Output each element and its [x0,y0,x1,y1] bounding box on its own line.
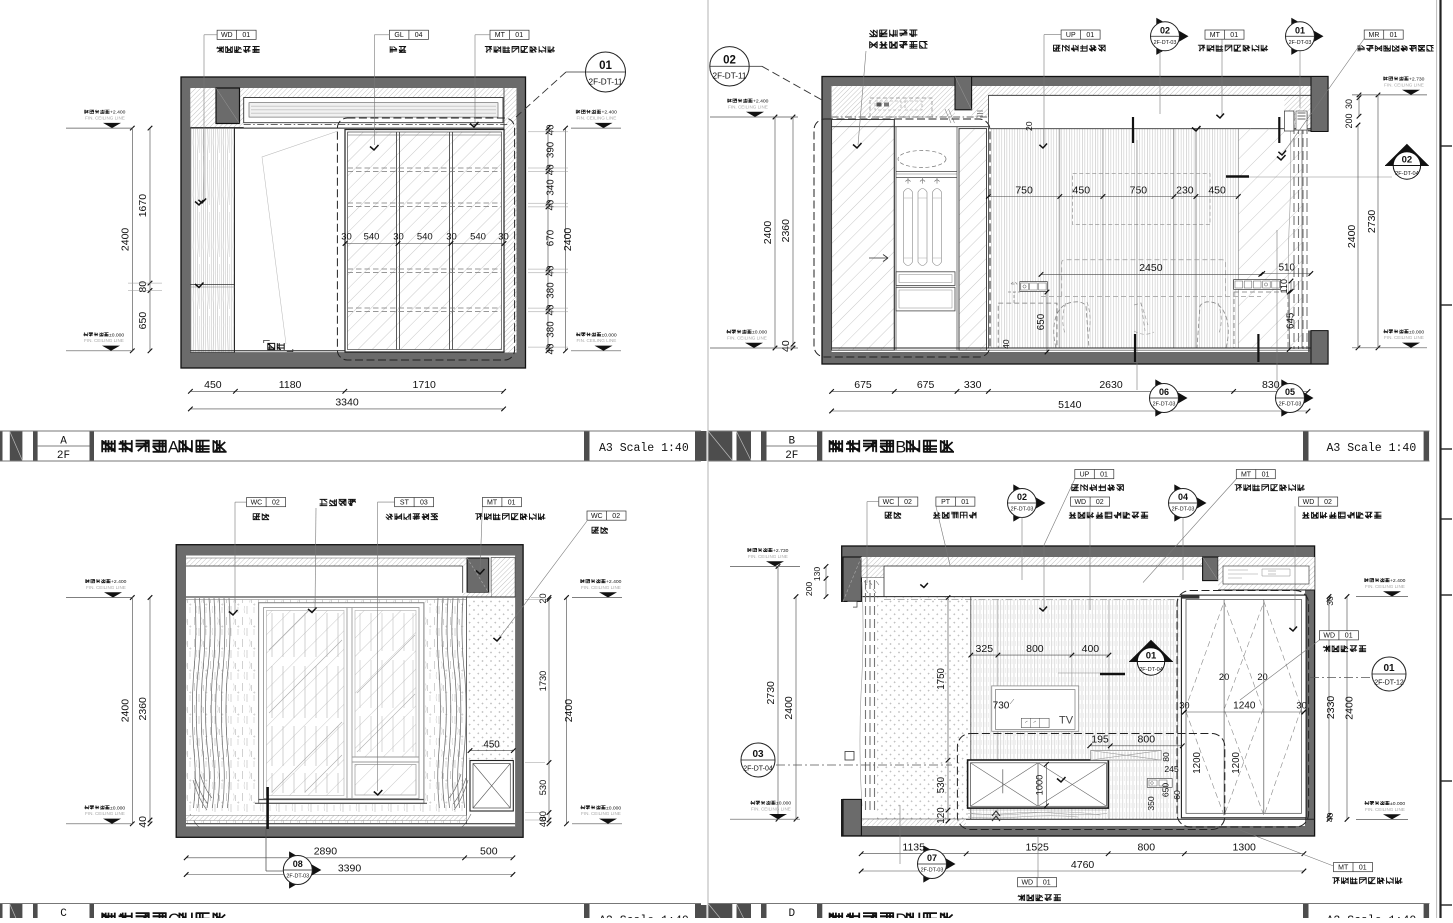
svg-text:TV: TV [1059,715,1074,727]
svg-text:WD: WD [1303,499,1315,506]
svg-text:01: 01 [242,32,250,39]
svg-text:WD: WD [221,32,233,39]
svg-text:2F-DT-03: 2F-DT-03 [1154,40,1177,46]
svg-text:800: 800 [1026,643,1044,655]
svg-text:2400: 2400 [762,221,774,245]
svg-text:20: 20 [1024,121,1034,131]
svg-text:540: 540 [364,232,380,243]
svg-text:1180: 1180 [279,379,302,391]
svg-text:30: 30 [393,232,404,243]
svg-text:40: 40 [1001,339,1011,349]
svg-text:30: 30 [1296,700,1306,710]
svg-text:1200: 1200 [1192,751,1203,773]
svg-text:2400: 2400 [119,699,131,723]
svg-text:650: 650 [1036,313,1047,330]
svg-text:325: 325 [976,643,994,655]
svg-text:2F-DT-03: 2F-DT-03 [1279,402,1302,408]
svg-text:01: 01 [1146,651,1157,662]
svg-text:390: 390 [546,141,557,158]
svg-text:380: 380 [546,321,557,338]
svg-text:540: 540 [470,232,486,243]
svg-text:30: 30 [1179,700,1189,710]
svg-text:2400: 2400 [119,228,131,252]
svg-text:530: 530 [538,780,548,796]
svg-text:02: 02 [904,499,912,506]
svg-text:02: 02 [612,513,620,520]
svg-text:40: 40 [1325,813,1335,823]
svg-text:30: 30 [498,232,509,243]
svg-text:06: 06 [1159,387,1169,397]
svg-text:2730: 2730 [765,681,777,705]
svg-text:350: 350 [1146,796,1156,811]
svg-text:450: 450 [204,379,222,391]
svg-text:C: C [60,908,67,918]
svg-text:2400: 2400 [1344,696,1356,720]
svg-text:01: 01 [1359,865,1367,872]
svg-text:450: 450 [1208,184,1226,196]
svg-text:675: 675 [917,379,935,391]
svg-text:645: 645 [1286,312,1297,329]
svg-text:110: 110 [1279,279,1289,293]
svg-text:01: 01 [1383,663,1395,674]
svg-text:2450: 2450 [1139,262,1163,274]
svg-text:FIN. CEILING LINE: FIN. CEILING LINE [85,811,125,816]
svg-text:2F-DT-11: 2F-DT-11 [713,72,747,81]
svg-text:01: 01 [1100,472,1108,479]
svg-text:730: 730 [993,700,1010,711]
svg-text:UP: UP [1066,32,1076,39]
svg-text:120: 120 [936,807,947,824]
svg-text:02: 02 [723,54,736,66]
svg-text:2F: 2F [57,450,70,462]
svg-text:02: 02 [1096,499,1104,506]
svg-text:FIN. CEILING LINE: FIN. CEILING LINE [1384,82,1424,87]
svg-text:07: 07 [927,853,937,863]
svg-text:04: 04 [415,32,423,39]
svg-text:05: 05 [1285,387,1295,397]
svg-text:01: 01 [1230,32,1238,39]
svg-text:03: 03 [420,500,428,507]
svg-text:WD: WD [1323,633,1335,640]
svg-text:FIN. CEILING LINE: FIN. CEILING LINE [581,585,621,590]
svg-text:400: 400 [1082,643,1100,655]
svg-text:01: 01 [1345,633,1353,640]
svg-text:200: 200 [804,582,814,597]
svg-text:MT: MT [495,32,506,39]
svg-text:2F-DT-03: 2F-DT-03 [1153,402,1176,408]
svg-text:800: 800 [1138,734,1156,746]
svg-text:D: D [895,911,907,918]
svg-text:A3 Scale 1:40: A3 Scale 1:40 [1327,915,1417,919]
svg-text:380: 380 [546,282,557,299]
svg-text:1135: 1135 [902,842,925,854]
svg-text:A: A [168,439,179,457]
svg-text:MR: MR [1369,32,1380,39]
svg-text:3340: 3340 [335,397,359,409]
svg-text:1670: 1670 [137,194,149,218]
svg-text:02: 02 [272,500,280,507]
svg-text:245: 245 [1164,764,1179,774]
svg-text:PT: PT [941,499,951,506]
svg-text:FIN. CEILING LINE: FIN. CEILING LINE [728,104,768,109]
svg-text:30: 30 [1344,99,1354,109]
svg-text:2F-DT-12: 2F-DT-12 [1374,680,1404,687]
svg-text:A: A [60,436,67,448]
svg-text:40: 40 [137,816,149,828]
svg-text:UP: UP [1080,472,1090,479]
svg-text:A3 Scale 1:40: A3 Scale 1:40 [599,915,689,919]
svg-text:1730: 1730 [538,671,548,692]
svg-text:03: 03 [752,749,764,760]
svg-text:FIN. CEILING LINE: FIN. CEILING LINE [727,335,767,340]
svg-text:30: 30 [446,232,457,243]
svg-text:1000: 1000 [1034,775,1044,796]
svg-text:20: 20 [538,593,548,603]
svg-text:WC: WC [591,513,603,520]
svg-text:MT: MT [1241,472,1252,479]
svg-text:500: 500 [480,846,498,858]
svg-text:A3 Scale 1:40: A3 Scale 1:40 [599,442,689,455]
svg-text:02: 02 [1402,155,1413,166]
svg-text:FIN. CEILING LINE: FIN. CEILING LINE [748,554,788,559]
svg-text:750: 750 [1015,184,1033,196]
svg-text:2F-DT-04: 2F-DT-04 [1395,171,1419,177]
svg-text:FIN. CEILING LINE: FIN. CEILING LINE [1384,335,1424,340]
svg-text:01: 01 [1390,32,1398,39]
svg-text:WC: WC [883,499,895,506]
svg-text:01: 01 [515,32,523,39]
svg-text:80: 80 [137,281,149,293]
svg-text:40: 40 [538,817,548,827]
svg-text:C: C [168,911,180,918]
svg-text:01: 01 [508,500,516,507]
svg-text:450: 450 [1073,184,1091,196]
svg-text:01: 01 [1295,25,1305,35]
svg-text:30: 30 [1325,596,1335,606]
svg-text:2890: 2890 [314,846,338,858]
svg-text:MT: MT [1210,32,1221,39]
svg-text:FIN. CEILING LINE: FIN. CEILING LINE [577,338,617,343]
svg-text:530: 530 [936,776,947,793]
svg-text:40: 40 [780,340,792,352]
svg-text:A3 Scale 1:40: A3 Scale 1:40 [1327,442,1417,455]
svg-text:1200: 1200 [1231,751,1242,773]
svg-text:2330: 2330 [1325,696,1337,720]
svg-text:4760: 4760 [1071,859,1095,871]
svg-text:800: 800 [1138,842,1156,854]
svg-text:2400: 2400 [562,228,574,252]
svg-text:WD: WD [1074,499,1086,506]
svg-text:40: 40 [546,164,557,175]
svg-text:195: 195 [1091,734,1109,746]
svg-text:450: 450 [483,739,500,750]
svg-text:2360: 2360 [780,219,792,243]
svg-text:2F-DT-03: 2F-DT-03 [1011,507,1034,513]
svg-text:2F-DT-03: 2F-DT-03 [1172,507,1195,513]
svg-text:1710: 1710 [413,379,437,391]
svg-text:1300: 1300 [1233,842,1257,854]
svg-text:2F-DT-03: 2F-DT-03 [921,868,944,874]
svg-text:130: 130 [812,567,822,582]
svg-text:D: D [788,908,795,918]
svg-text:FIN. CEILING LINE: FIN. CEILING LINE [577,116,617,121]
svg-text:WD: WD [1021,880,1033,887]
svg-text:FIN. CEILING LINE: FIN. CEILING LINE [86,585,126,590]
svg-text:2400: 2400 [783,696,795,720]
svg-text:02: 02 [1324,499,1332,506]
svg-text:2F-DT-11: 2F-DT-11 [589,77,623,86]
svg-text:FIN. CEILING LINE: FIN. CEILING LINE [85,116,125,121]
svg-text:510: 510 [1279,262,1296,273]
svg-text:30: 30 [341,232,352,243]
svg-text:01: 01 [1262,472,1270,479]
svg-text:2630: 2630 [1099,379,1123,391]
svg-text:40: 40 [546,199,557,210]
svg-text:04: 04 [1178,492,1188,502]
svg-text:20: 20 [1219,672,1229,682]
svg-text:FIN. CEILING LINE: FIN. CEILING LINE [1365,584,1405,589]
svg-text:FIN. CEILING LINE: FIN. CEILING LINE [84,338,124,343]
svg-text:2400: 2400 [1346,225,1358,249]
svg-text:3390: 3390 [338,862,362,874]
svg-text:670: 670 [546,229,557,246]
svg-text:2F-DT-04: 2F-DT-04 [743,766,773,773]
svg-text:01: 01 [1086,32,1094,39]
svg-text:08: 08 [293,859,303,869]
svg-text:230: 230 [1176,184,1194,196]
svg-text:02: 02 [1017,492,1027,502]
svg-text:2730: 2730 [1366,210,1378,234]
svg-text:1750: 1750 [936,667,947,689]
svg-text:ST: ST [400,500,410,507]
svg-text:01: 01 [1043,880,1051,887]
svg-text:540: 540 [417,232,433,243]
svg-text:750: 750 [1130,184,1148,196]
svg-text:01: 01 [599,60,612,72]
svg-text:340: 340 [546,179,557,196]
svg-text:650: 650 [137,312,149,330]
svg-text:2F-DT-04: 2F-DT-04 [1139,667,1163,673]
svg-text:200: 200 [1344,113,1354,128]
svg-text:2F: 2F [785,450,798,462]
svg-text:02: 02 [1160,25,1170,35]
svg-text:MT: MT [487,500,498,507]
svg-text:60: 60 [1172,790,1182,800]
svg-text:WC: WC [251,500,263,507]
svg-text:40: 40 [546,124,557,135]
svg-text:40: 40 [546,265,557,276]
svg-text:1525: 1525 [1026,842,1050,854]
svg-text:2400: 2400 [563,699,575,723]
svg-text:GL: GL [394,32,403,39]
svg-text:FIN. CEILING LINE: FIN. CEILING LINE [751,807,791,812]
svg-text:330: 330 [964,379,982,391]
svg-text:675: 675 [854,379,872,391]
svg-text:B: B [788,436,795,448]
svg-text:MT: MT [1338,865,1349,872]
svg-text:B: B [895,439,906,457]
svg-text:01: 01 [961,499,969,506]
svg-text:2360: 2360 [137,697,149,721]
svg-text:FIN. CEILING LINE: FIN. CEILING LINE [581,811,621,816]
svg-text:40: 40 [546,343,557,354]
svg-text:5140: 5140 [1058,399,1082,411]
svg-text:1240: 1240 [1233,700,1256,711]
svg-text:2F-DT-03: 2F-DT-03 [1289,40,1312,46]
svg-text:FIN. CEILING LINE: FIN. CEILING LINE [1365,807,1405,812]
svg-text:2F-DT-03: 2F-DT-03 [286,874,309,880]
svg-text:40: 40 [546,304,557,315]
svg-text:650: 650 [1161,783,1171,798]
svg-text:80: 80 [1161,752,1171,762]
